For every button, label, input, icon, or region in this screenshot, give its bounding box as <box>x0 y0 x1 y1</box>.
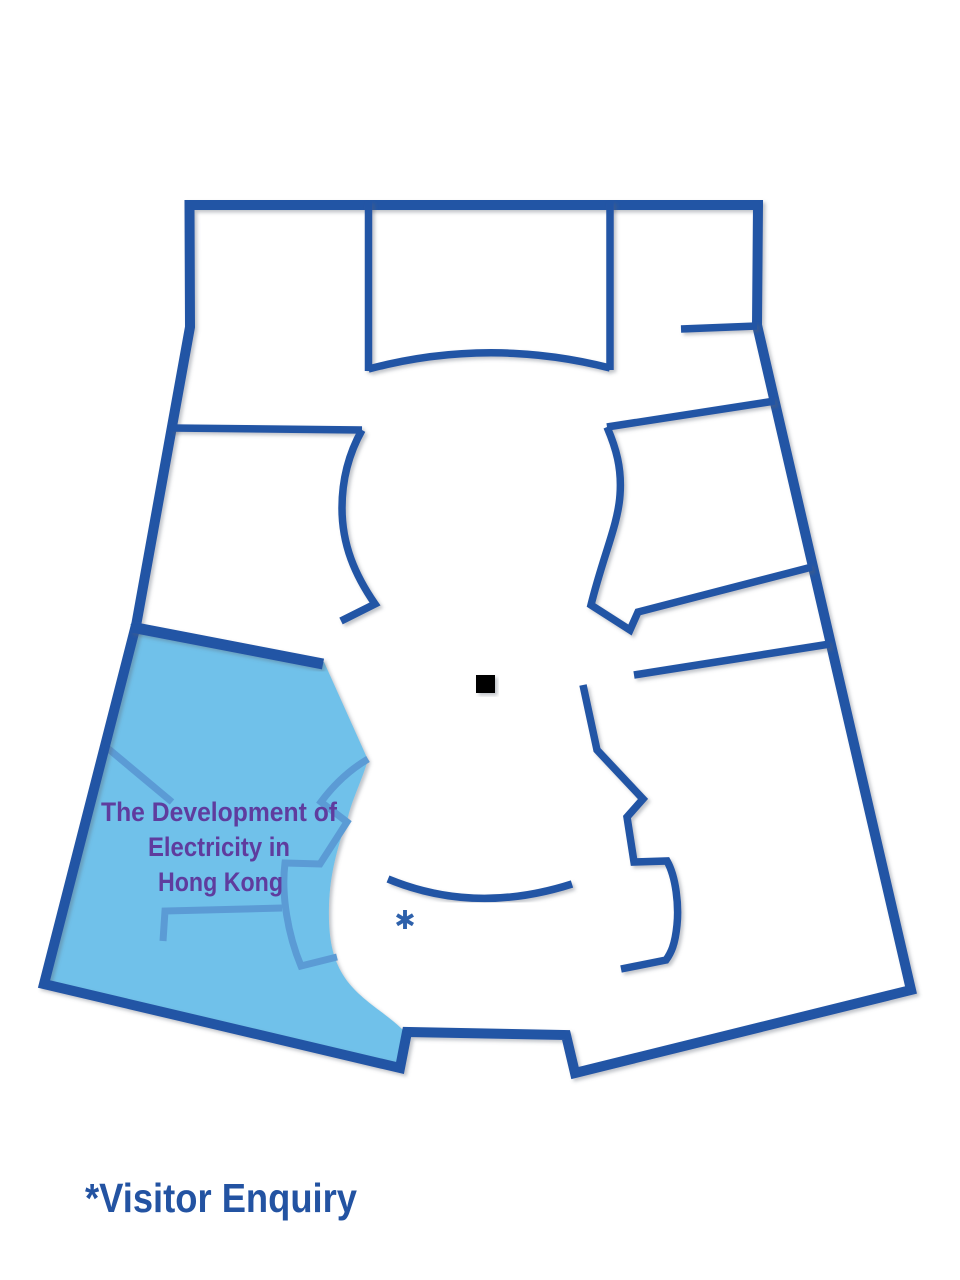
svg-text:The Development of: The Development of <box>101 797 338 827</box>
svg-text:Electricity in: Electricity in <box>148 832 290 862</box>
svg-text:*Visitor Enquiry: *Visitor Enquiry <box>85 1175 357 1221</box>
svg-text:Hong Kong: Hong Kong <box>158 867 283 897</box>
